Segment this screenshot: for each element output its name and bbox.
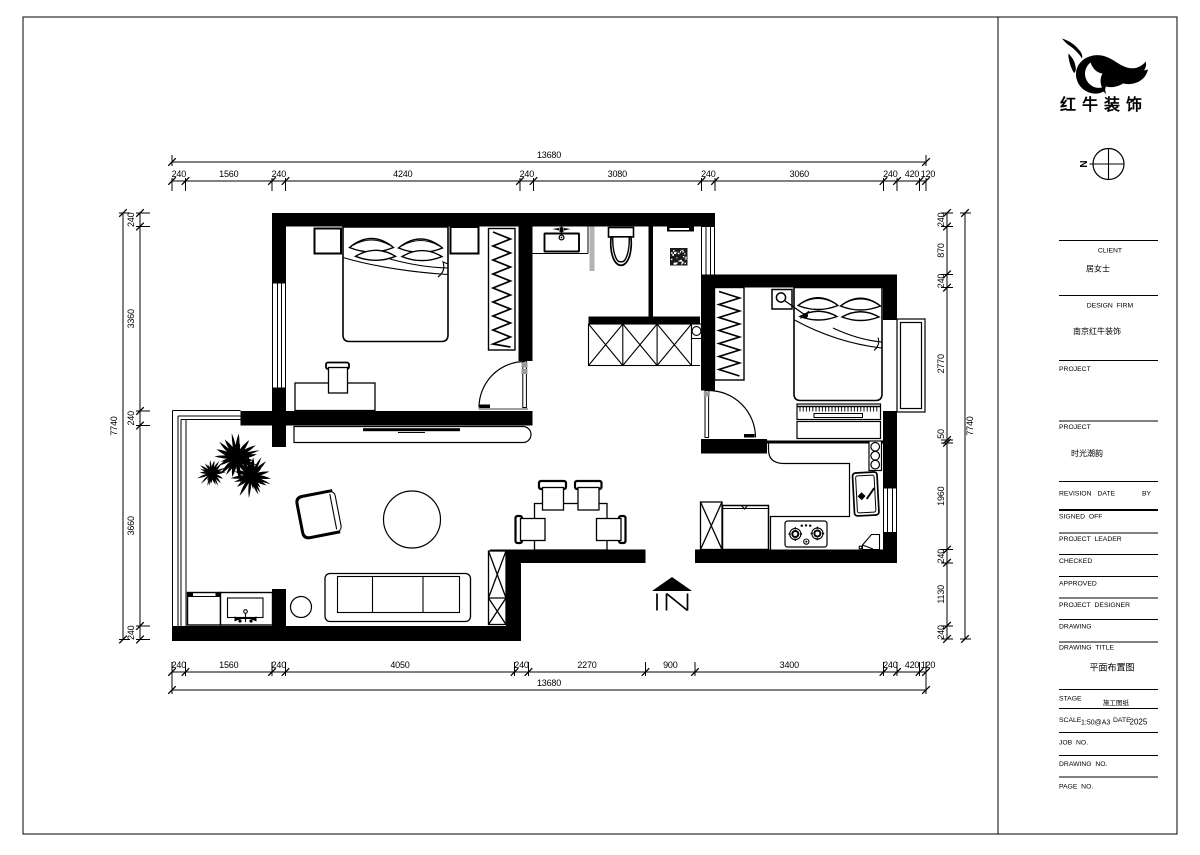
svg-text:3660: 3660 bbox=[126, 516, 136, 535]
svg-text:2270: 2270 bbox=[577, 660, 596, 670]
svg-text:7740: 7740 bbox=[965, 416, 975, 435]
svg-text:居女士: 居女士 bbox=[1086, 264, 1110, 274]
svg-text:240: 240 bbox=[936, 274, 946, 289]
svg-text:870: 870 bbox=[936, 243, 946, 258]
svg-text:420: 420 bbox=[905, 169, 920, 179]
svg-text:红牛装饰: 红牛装饰 bbox=[1060, 95, 1148, 114]
svg-text:120: 120 bbox=[921, 169, 936, 179]
svg-text:240: 240 bbox=[272, 660, 287, 670]
svg-text:7740: 7740 bbox=[109, 416, 119, 435]
svg-text:4240: 4240 bbox=[393, 169, 412, 179]
svg-text:SCALE: SCALE bbox=[1059, 717, 1082, 724]
svg-text:420: 420 bbox=[905, 660, 920, 670]
svg-text:南京红牛装饰: 南京红牛装饰 bbox=[1073, 326, 1121, 336]
svg-text:1560: 1560 bbox=[219, 169, 238, 179]
svg-text:JOB NO.: JOB NO. bbox=[1059, 739, 1088, 746]
svg-text:240: 240 bbox=[126, 411, 136, 426]
svg-text:DESIGN FIRM: DESIGN FIRM bbox=[1087, 303, 1134, 310]
svg-text:50: 50 bbox=[936, 429, 946, 439]
svg-text:4050: 4050 bbox=[390, 660, 409, 670]
svg-text:APPROVED: APPROVED bbox=[1059, 580, 1097, 587]
svg-text:13680: 13680 bbox=[537, 150, 561, 160]
svg-text:REVISION: REVISION bbox=[1059, 490, 1092, 497]
svg-text:STAGE: STAGE bbox=[1059, 695, 1082, 702]
svg-text:240: 240 bbox=[936, 212, 946, 227]
svg-text:PROJECT LEADER: PROJECT LEADER bbox=[1059, 536, 1122, 543]
svg-text:DRAWING TITLE: DRAWING TITLE bbox=[1059, 645, 1114, 652]
svg-text:3360: 3360 bbox=[126, 309, 136, 328]
svg-text:240: 240 bbox=[883, 169, 898, 179]
svg-text:DATE: DATE bbox=[1098, 490, 1116, 497]
svg-text:2025: 2025 bbox=[1130, 718, 1148, 727]
svg-text:3060: 3060 bbox=[790, 169, 809, 179]
svg-text:3400: 3400 bbox=[780, 660, 799, 670]
svg-text:1:50@A3: 1:50@A3 bbox=[1081, 720, 1110, 727]
svg-text:SIGNED OFF: SIGNED OFF bbox=[1059, 514, 1102, 521]
svg-text:CHECKED: CHECKED bbox=[1059, 558, 1092, 565]
svg-text:1960: 1960 bbox=[936, 486, 946, 505]
svg-text:240: 240 bbox=[701, 169, 716, 179]
svg-text:2770: 2770 bbox=[936, 354, 946, 373]
svg-text:240: 240 bbox=[883, 660, 898, 670]
svg-text:120: 120 bbox=[921, 660, 936, 670]
svg-text:240: 240 bbox=[514, 660, 529, 670]
svg-text:13680: 13680 bbox=[537, 678, 561, 688]
svg-text:240: 240 bbox=[272, 169, 287, 179]
svg-text:240: 240 bbox=[126, 625, 136, 640]
svg-text:240: 240 bbox=[936, 625, 946, 640]
svg-text:平面布置图: 平面布置图 bbox=[1089, 662, 1134, 673]
svg-text:BY: BY bbox=[1142, 490, 1152, 497]
svg-text:PAGE NO.: PAGE NO. bbox=[1059, 783, 1093, 790]
svg-text:1130: 1130 bbox=[936, 585, 946, 604]
svg-text:900: 900 bbox=[663, 660, 678, 670]
svg-text:240: 240 bbox=[936, 549, 946, 564]
svg-text:PROJECT DESIGNER: PROJECT DESIGNER bbox=[1059, 602, 1130, 609]
svg-text:DATE: DATE bbox=[1113, 717, 1131, 724]
svg-text:PROJECT: PROJECT bbox=[1059, 366, 1091, 373]
svg-text:240: 240 bbox=[126, 212, 136, 227]
svg-text:DRAWING NO.: DRAWING NO. bbox=[1059, 761, 1108, 768]
svg-text:240: 240 bbox=[172, 660, 187, 670]
svg-text:CLIENT: CLIENT bbox=[1098, 248, 1122, 255]
svg-text:N: N bbox=[1079, 160, 1090, 167]
svg-text:240: 240 bbox=[520, 169, 535, 179]
svg-text:240: 240 bbox=[172, 169, 187, 179]
svg-text:PROJECT: PROJECT bbox=[1059, 424, 1091, 431]
svg-text:1560: 1560 bbox=[219, 660, 238, 670]
svg-text:3080: 3080 bbox=[608, 169, 627, 179]
svg-text:施工图纸: 施工图纸 bbox=[1103, 698, 1130, 707]
svg-text:DRAWING: DRAWING bbox=[1059, 623, 1092, 630]
svg-text:时光潮韵: 时光潮韵 bbox=[1071, 448, 1103, 458]
